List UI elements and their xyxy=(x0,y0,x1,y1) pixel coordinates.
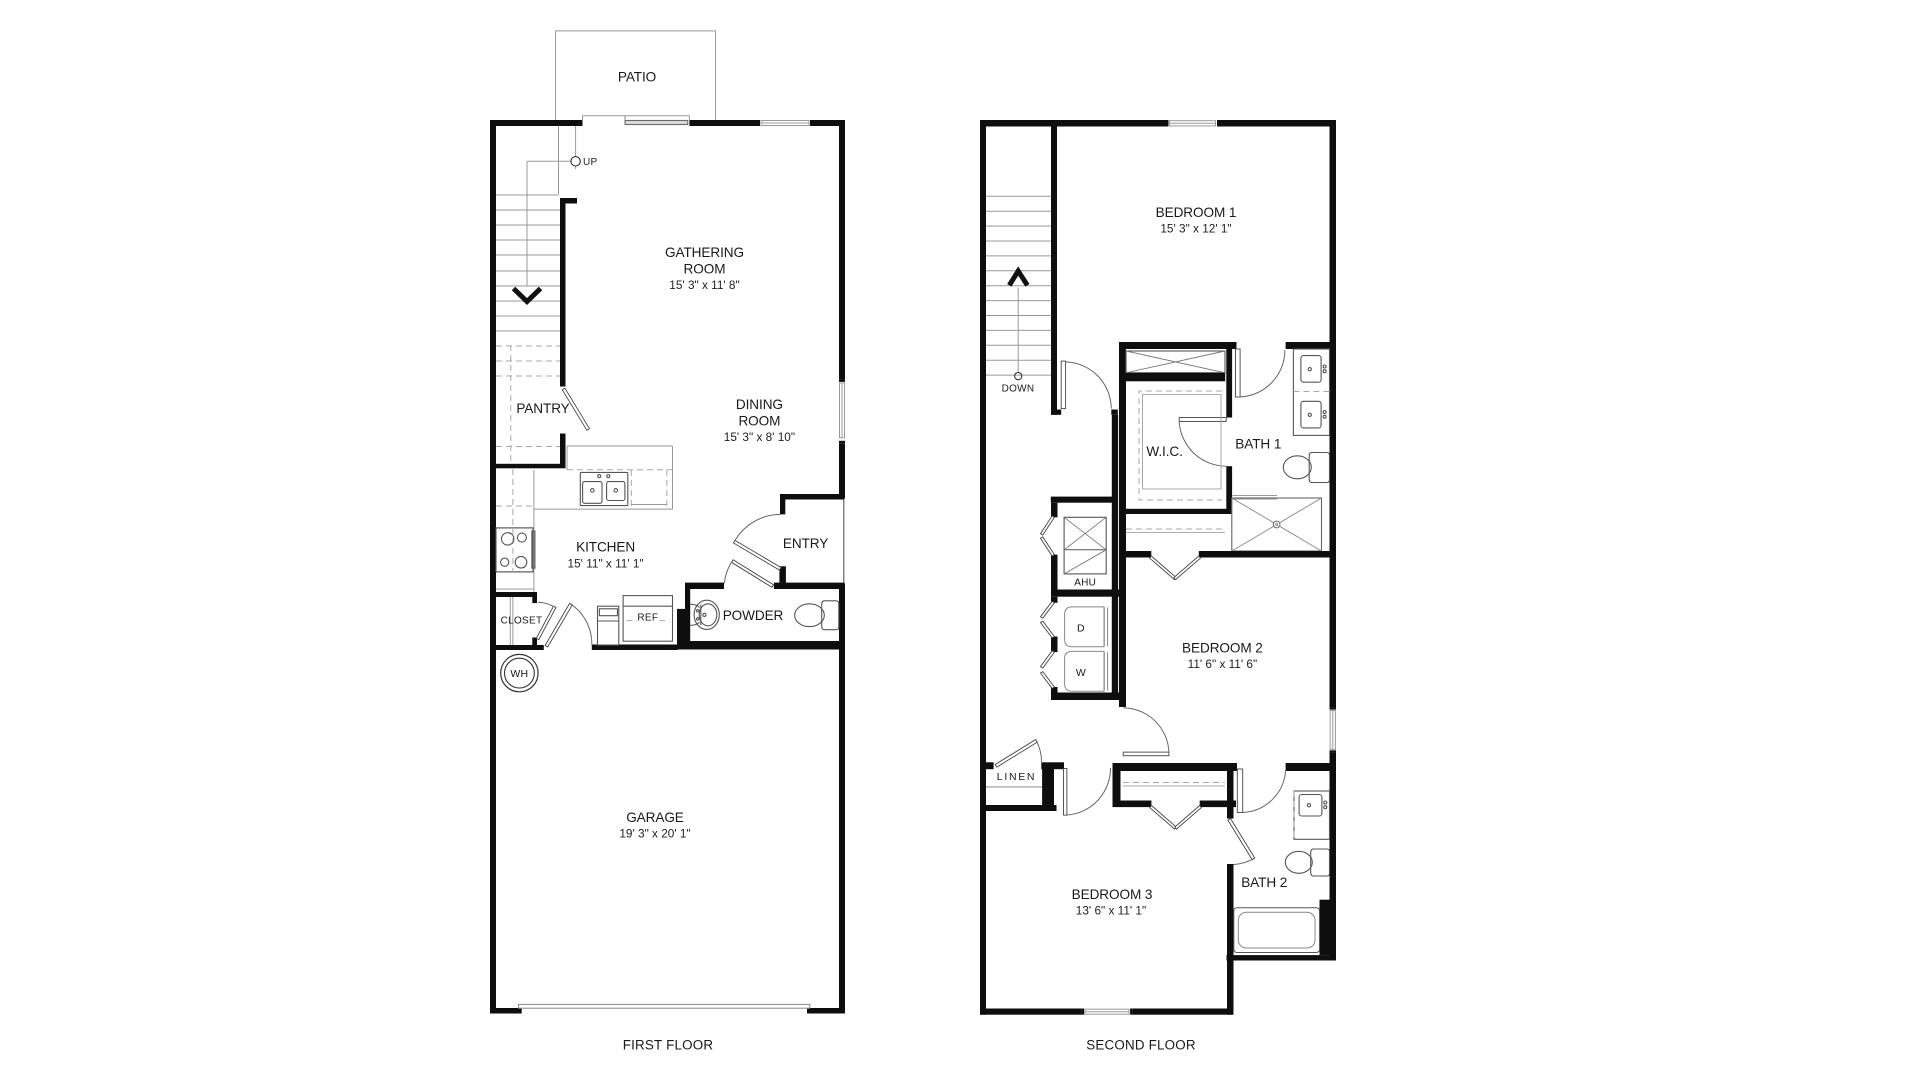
svg-text:REF: REF xyxy=(637,613,658,624)
svg-text:D: D xyxy=(1077,623,1085,635)
svg-text:FIRST FLOOR: FIRST FLOOR xyxy=(623,1038,714,1053)
svg-text:W.I.C.: W.I.C. xyxy=(1146,444,1182,459)
svg-text:15' 11" x 11' 1": 15' 11" x 11' 1" xyxy=(568,556,644,570)
svg-text:19' 3" x 20' 1": 19' 3" x 20' 1" xyxy=(619,827,690,841)
svg-text:BEDROOM 2: BEDROOM 2 xyxy=(1182,641,1263,656)
svg-text:SECOND FLOOR: SECOND FLOOR xyxy=(1086,1038,1196,1053)
svg-text:11' 6" x 11' 6": 11' 6" x 11' 6" xyxy=(1188,657,1258,671)
svg-text:ROOM: ROOM xyxy=(738,413,780,428)
svg-text:15' 3" x 11' 8": 15' 3" x 11' 8" xyxy=(669,278,739,292)
svg-text:GATHERING: GATHERING xyxy=(665,245,744,260)
svg-text:AHU: AHU xyxy=(1074,578,1096,589)
svg-text:BEDROOM 3: BEDROOM 3 xyxy=(1072,887,1153,902)
svg-text:BEDROOM 1: BEDROOM 1 xyxy=(1156,205,1237,220)
svg-text:PATIO: PATIO xyxy=(618,70,656,85)
svg-text:PANTRY: PANTRY xyxy=(516,401,569,416)
svg-text:DINING: DINING xyxy=(736,397,783,412)
svg-text:ROOM: ROOM xyxy=(684,261,726,276)
svg-text:POWDER: POWDER xyxy=(723,608,784,623)
svg-text:ENTRY: ENTRY xyxy=(783,536,828,551)
svg-text:KITCHEN: KITCHEN xyxy=(576,540,635,555)
svg-text:BATH 1: BATH 1 xyxy=(1235,437,1281,452)
svg-text:GARAGE: GARAGE xyxy=(626,810,684,825)
svg-text:LINEN: LINEN xyxy=(997,771,1036,783)
svg-text:DOWN: DOWN xyxy=(1002,384,1035,395)
svg-text:CLOSET: CLOSET xyxy=(501,616,543,627)
svg-text:15' 3" x 12' 1": 15' 3" x 12' 1" xyxy=(1160,221,1231,235)
svg-text:13' 6" x 11' 1": 13' 6" x 11' 1" xyxy=(1076,904,1146,918)
svg-text:BATH 2: BATH 2 xyxy=(1241,875,1287,890)
svg-text:W: W xyxy=(1076,667,1086,679)
svg-text:UP: UP xyxy=(583,157,598,168)
svg-text:WH: WH xyxy=(510,668,528,680)
svg-text:15' 3" x 8' 10": 15' 3" x 8' 10" xyxy=(724,430,795,444)
